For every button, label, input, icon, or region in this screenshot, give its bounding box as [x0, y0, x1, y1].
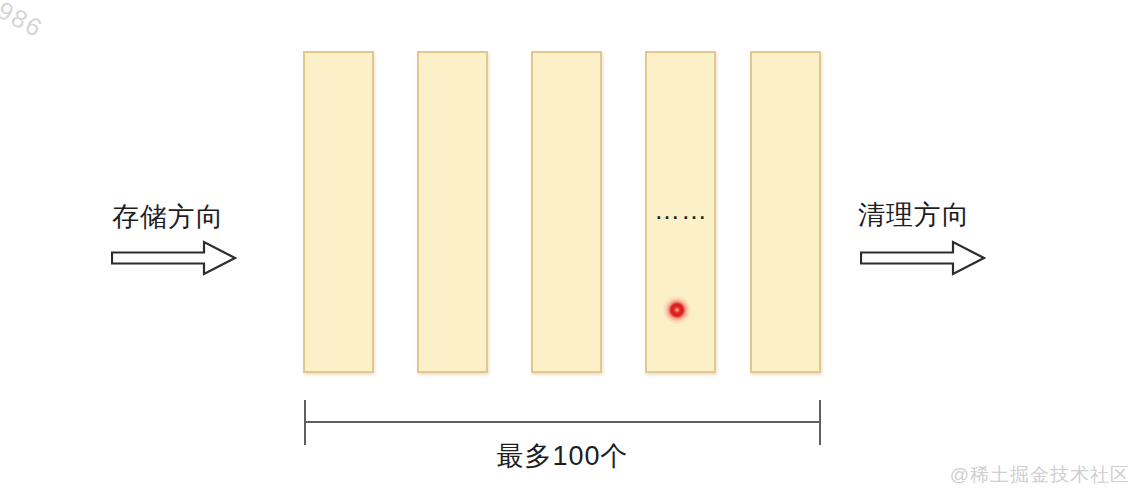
storage-direction-arrow-icon	[111, 240, 237, 276]
storage-direction-label: 存储方向	[112, 199, 224, 235]
cleanup-direction-label: 清理方向	[858, 197, 970, 233]
diagram-canvas: 3986 存储方向 …… 清理方向 最多100个 @稀土掘金技术社区	[0, 0, 1138, 498]
cleanup-direction-arrow-icon	[860, 240, 986, 276]
capacity-label: 最多100个	[305, 438, 820, 474]
community-watermark: @稀土掘金技术社区	[950, 462, 1130, 488]
storage-slot	[750, 51, 821, 373]
corner-number-watermark: 3986	[0, 0, 48, 43]
storage-slot	[303, 51, 374, 373]
laser-pointer-dot	[663, 296, 691, 324]
ellipsis-dots: ……	[645, 197, 717, 223]
storage-slot	[417, 51, 488, 373]
storage-slot	[531, 51, 602, 373]
capacity-bracket-line	[305, 421, 820, 423]
